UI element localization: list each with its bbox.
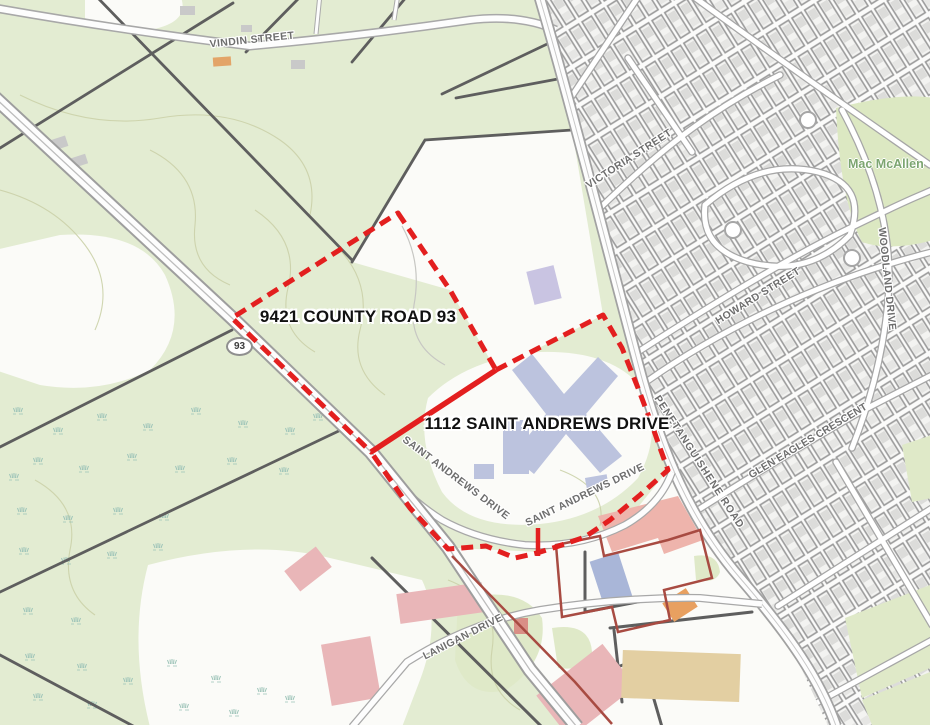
route-93-shield: 93: [226, 337, 253, 356]
map-canvas[interactable]: VINDIN STREET VICTORIA STREET HOWARD STR…: [0, 0, 930, 725]
orange-building: [213, 56, 232, 66]
map-graphics: [0, 0, 930, 725]
pink-building: [321, 636, 381, 706]
tan-building: [621, 650, 741, 702]
